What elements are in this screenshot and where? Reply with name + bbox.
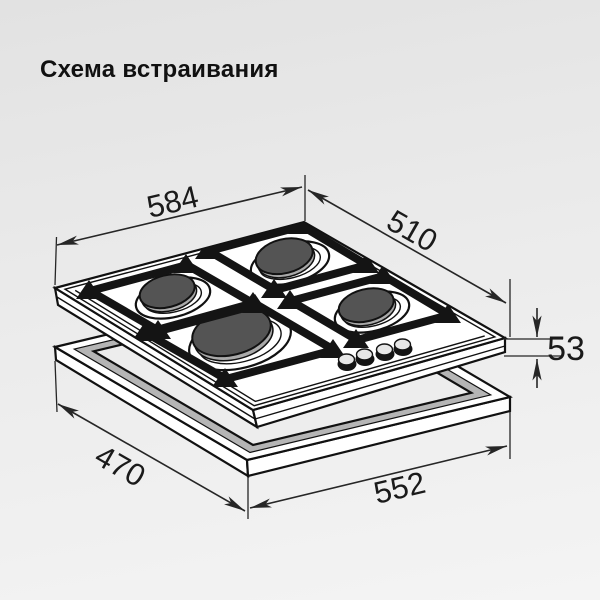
extension-line xyxy=(55,361,57,412)
dim-label-cutout-depth: 470 xyxy=(89,438,151,494)
extension-line xyxy=(55,237,57,285)
dim-label-cutout-width: 552 xyxy=(370,465,428,511)
control-knob xyxy=(338,354,357,371)
control-knob xyxy=(376,344,395,361)
dimension-hob-height: 53 xyxy=(504,308,585,388)
page: Схема встраивания xyxy=(0,0,600,600)
control-knob xyxy=(356,349,375,366)
installation-diagram: 584 510 53 470 552 xyxy=(0,0,600,600)
dim-label-hob-height: 53 xyxy=(547,330,585,368)
dim-label-hob-depth: 510 xyxy=(381,203,443,259)
control-knob xyxy=(394,339,413,356)
dim-label-hob-width: 584 xyxy=(143,179,201,225)
